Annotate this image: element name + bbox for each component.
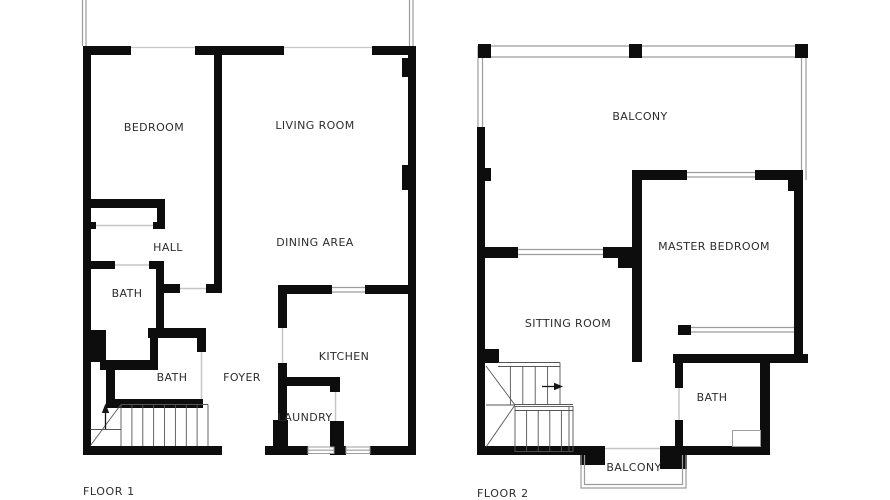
floor2-title: FLOOR 2 bbox=[477, 487, 529, 500]
floor2-label-sitting-room: SITTING ROOM bbox=[525, 317, 611, 330]
floor1-label-hall: HALL bbox=[153, 241, 183, 254]
floor1-label-kitchen: KITCHEN bbox=[319, 350, 369, 363]
floor1-balcony-railing bbox=[83, 0, 414, 46]
floor2-walls bbox=[477, 44, 808, 469]
floor1-title: FLOOR 1 bbox=[83, 485, 135, 498]
floor2-label-balcony-top: BALCONY bbox=[612, 110, 667, 123]
floor1-label-bedroom: BEDROOM bbox=[124, 121, 184, 134]
floor2-door-openings bbox=[605, 388, 679, 449]
floor1-label-foyer: FOYER bbox=[223, 371, 261, 384]
floor1-staircase bbox=[91, 404, 209, 447]
bath-fixture bbox=[733, 431, 761, 447]
floor2-windows bbox=[518, 173, 794, 489]
floor2-label-bath: BATH bbox=[697, 391, 728, 404]
floor1-plan: BEDROOM LIVING ROOM HALL DINING AREA BAT… bbox=[83, 0, 417, 498]
floorplan-canvas: BEDROOM LIVING ROOM HALL DINING AREA BAT… bbox=[0, 0, 890, 500]
floor1-label-bath-lower: BATH bbox=[157, 371, 188, 384]
floor1-label-living-room: LIVING ROOM bbox=[275, 119, 354, 132]
floor1-label-dining-area: DINING AREA bbox=[276, 236, 354, 249]
floor2-label-balcony-bottom: BALCONY bbox=[606, 461, 661, 474]
floor1-label-laundry: LAUNDRY bbox=[277, 411, 332, 424]
floor2-label-master-bedroom: MASTER BEDROOM bbox=[658, 240, 770, 253]
floor2-staircase bbox=[486, 363, 573, 452]
floor2-plan: BALCONY MASTER BEDROOM SITTING ROOM BATH… bbox=[477, 44, 808, 500]
floorplan-svg: BEDROOM LIVING ROOM HALL DINING AREA BAT… bbox=[0, 0, 890, 500]
floor1-label-bath-upper: BATH bbox=[112, 287, 143, 300]
floor1-walls bbox=[83, 46, 416, 455]
